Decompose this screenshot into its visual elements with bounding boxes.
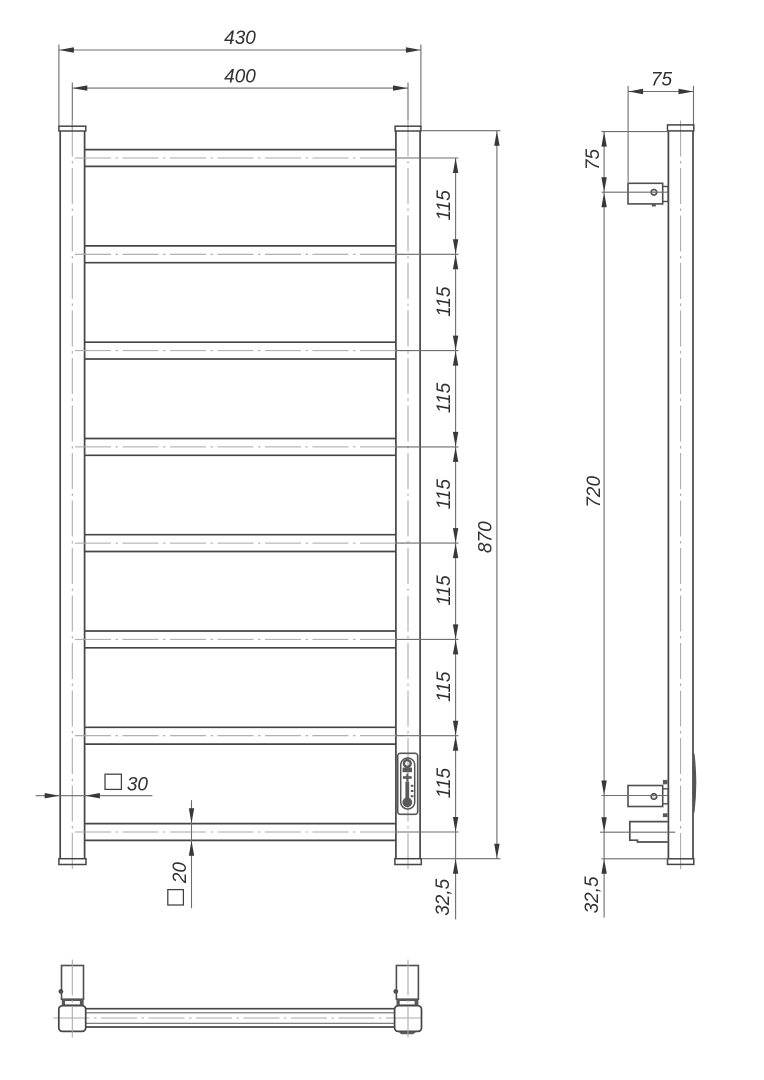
svg-text:75: 75 (583, 149, 604, 171)
svg-text:115: 115 (434, 575, 455, 606)
svg-text:115: 115 (434, 286, 455, 317)
svg-text:870: 870 (475, 521, 496, 553)
svg-text:20: 20 (170, 862, 191, 885)
svg-text:32,5: 32,5 (433, 878, 454, 915)
svg-text:115: 115 (434, 190, 455, 221)
svg-text:115: 115 (434, 479, 455, 510)
svg-text:720: 720 (584, 476, 605, 508)
svg-text:400: 400 (224, 67, 256, 88)
svg-text:115: 115 (434, 767, 455, 798)
svg-text:32,5: 32,5 (582, 876, 603, 913)
svg-text:115: 115 (434, 382, 455, 413)
svg-text:30: 30 (127, 774, 149, 795)
svg-text:115: 115 (434, 671, 455, 702)
svg-text:75: 75 (651, 70, 673, 91)
svg-text:430: 430 (224, 28, 256, 49)
